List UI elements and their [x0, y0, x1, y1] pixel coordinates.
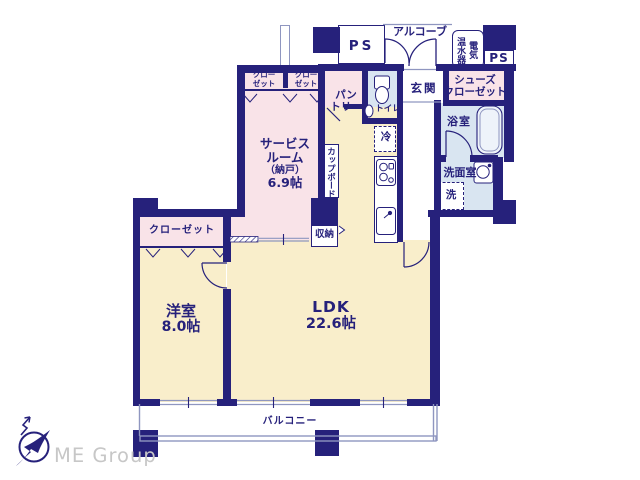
fridge-label: 冷 — [377, 132, 395, 144]
washroom-label: 洗面室 — [438, 167, 482, 179]
storage-wall-block — [311, 198, 338, 225]
kitchen-counter — [374, 156, 398, 243]
wall — [310, 399, 360, 406]
wall — [430, 210, 440, 406]
brand-name: ME Group — [54, 444, 157, 467]
wall — [223, 289, 231, 406]
storage-label: 収納 — [311, 230, 338, 241]
ps-left-label: PS — [338, 39, 385, 54]
wall — [397, 65, 403, 242]
toilet-label: トイレ — [375, 105, 401, 115]
closet-west-front-line — [140, 246, 223, 248]
service-room-label: サービス ルーム （納戸） 6.9帖 — [246, 137, 324, 190]
water-heater-label-right: 電気 — [467, 34, 477, 66]
wall-block — [133, 198, 158, 217]
balcony-pillar — [315, 430, 339, 456]
ps-right-label: PS — [484, 52, 514, 65]
wall — [434, 100, 441, 213]
wall-block — [493, 200, 516, 224]
western-room-label: 洋室 8.0帖 — [149, 303, 213, 335]
wall — [223, 213, 231, 262]
balcony-label: バルコニー — [258, 416, 322, 427]
pantry-label: パントリー — [325, 90, 367, 114]
genkan-label: 玄関 — [405, 82, 443, 95]
shoes-closet-label: シューズクローゼット — [443, 75, 507, 99]
bath-floor — [439, 103, 504, 158]
wall — [318, 64, 404, 71]
room-service-floor-ext — [231, 213, 239, 242]
water-heater-label-left: 温水器 — [455, 32, 465, 68]
wall — [237, 65, 245, 213]
floorplan: PS PS アルコーブ 電気 温水器 玄関 シューズクローゼット パントリー ト… — [0, 0, 640, 480]
wall-block — [313, 27, 340, 53]
wall — [443, 100, 505, 106]
pipe-shaft-box — [280, 25, 290, 66]
cupboard-label: カップボード — [325, 147, 335, 197]
alcove-label: アルコーブ — [390, 26, 450, 38]
washer-label: 洗 — [442, 190, 460, 202]
ps-door-arc — [385, 39, 409, 63]
closet-front-line — [239, 89, 322, 91]
bath-label: 浴室 — [443, 116, 475, 128]
closet-divider-wall — [283, 73, 288, 88]
compass-logo-icon — [16, 417, 50, 466]
ldk-label: LDK 22.6帖 — [299, 299, 363, 333]
wall-block — [483, 25, 516, 50]
closet-a-label: クローゼット — [247, 71, 281, 88]
closet-b-label: クローゼット — [289, 71, 323, 88]
front-door-arc — [409, 39, 436, 66]
closet-west-label: クローゼット — [141, 225, 223, 236]
wall — [133, 209, 140, 406]
